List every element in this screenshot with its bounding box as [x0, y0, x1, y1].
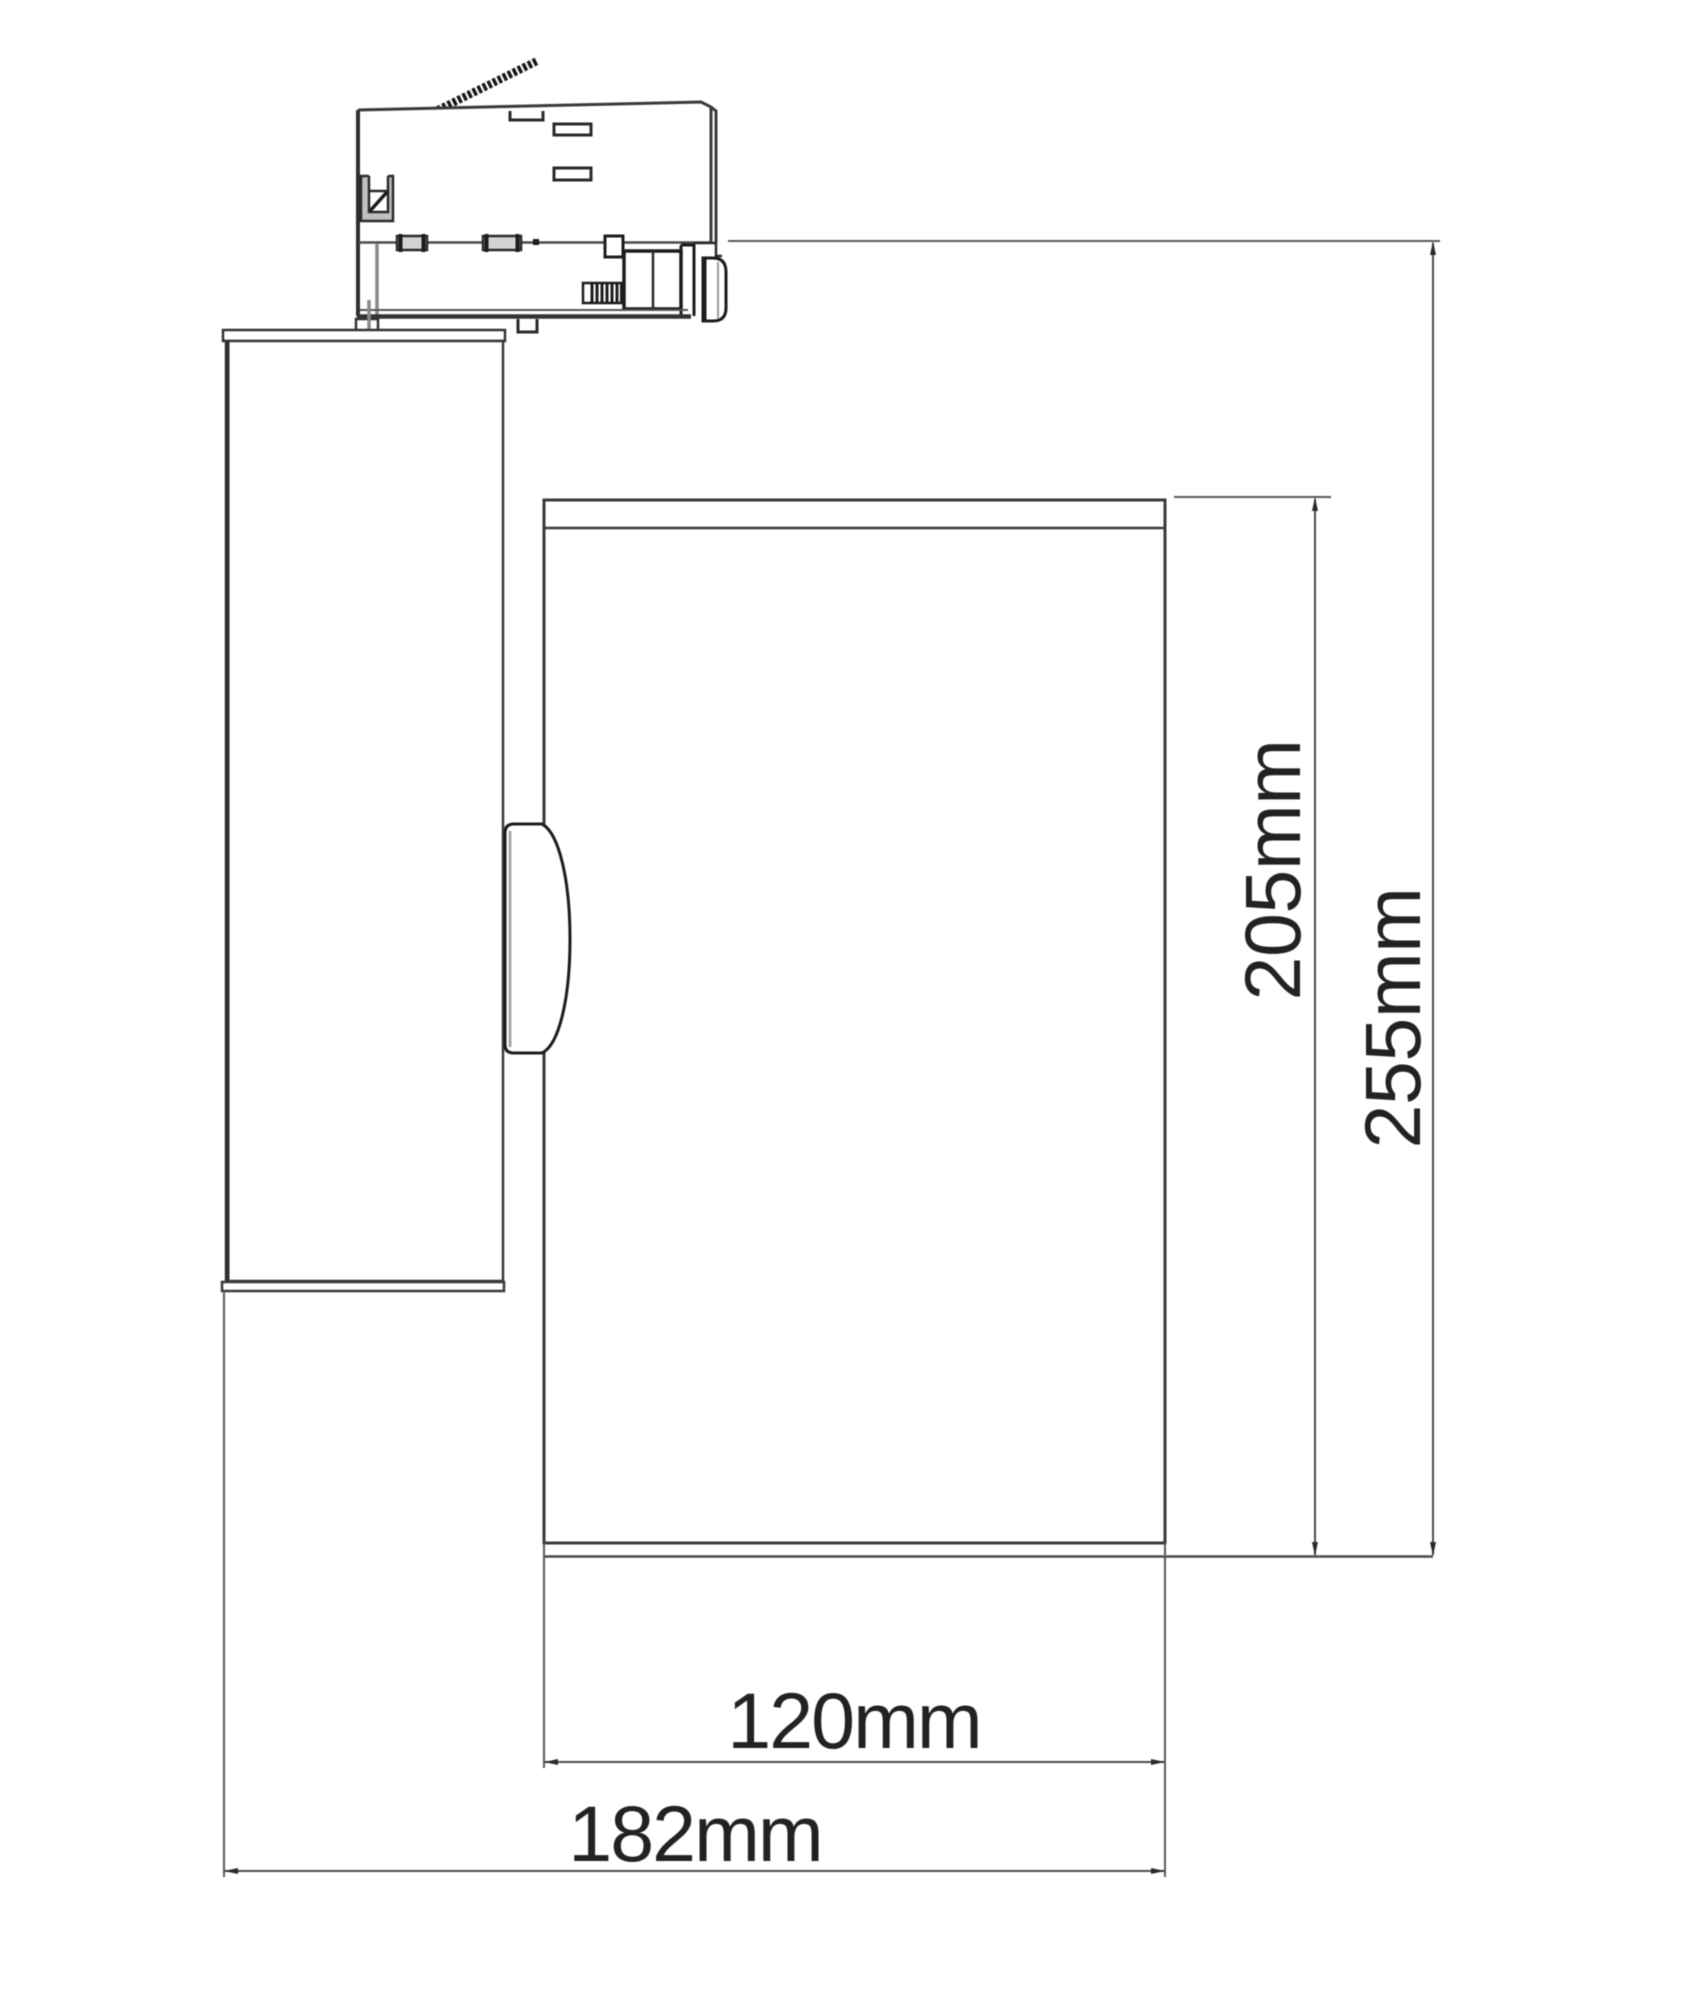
svg-text:205mm: 205mm	[1228, 740, 1317, 1001]
svg-text:182mm: 182mm	[568, 1789, 821, 1878]
svg-text:120mm: 120mm	[727, 1676, 980, 1765]
svg-text:255mm: 255mm	[1348, 888, 1437, 1149]
